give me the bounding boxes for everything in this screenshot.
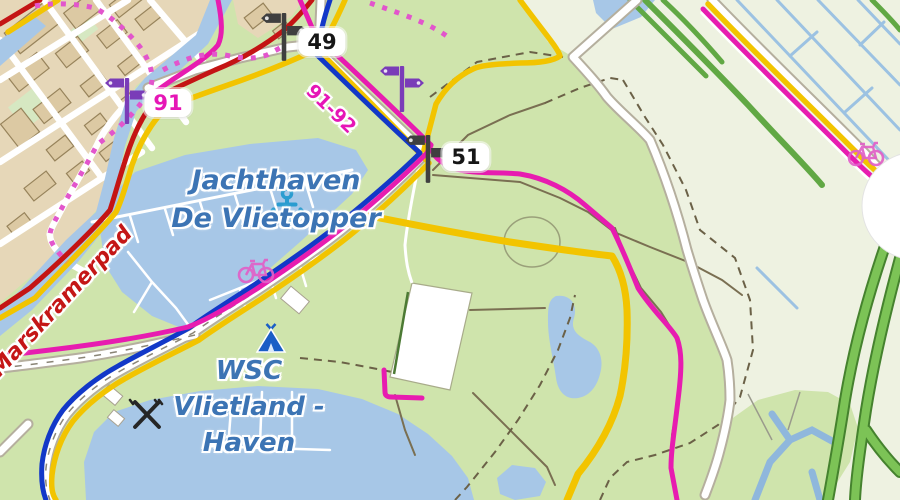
junction-badge-91: 91 bbox=[144, 89, 191, 117]
junction-badge-51: 51 bbox=[442, 143, 489, 171]
marina-label: Jachthaven De Vlietopper bbox=[171, 162, 381, 238]
map-artwork bbox=[0, 0, 900, 500]
map-canvas[interactable]: Jachthaven De Vlietopper WSC Vlietland -… bbox=[0, 0, 900, 500]
junction-badge-49: 49 bbox=[298, 28, 345, 56]
harbor-label: WSC Vlietland - Haven bbox=[173, 353, 324, 461]
